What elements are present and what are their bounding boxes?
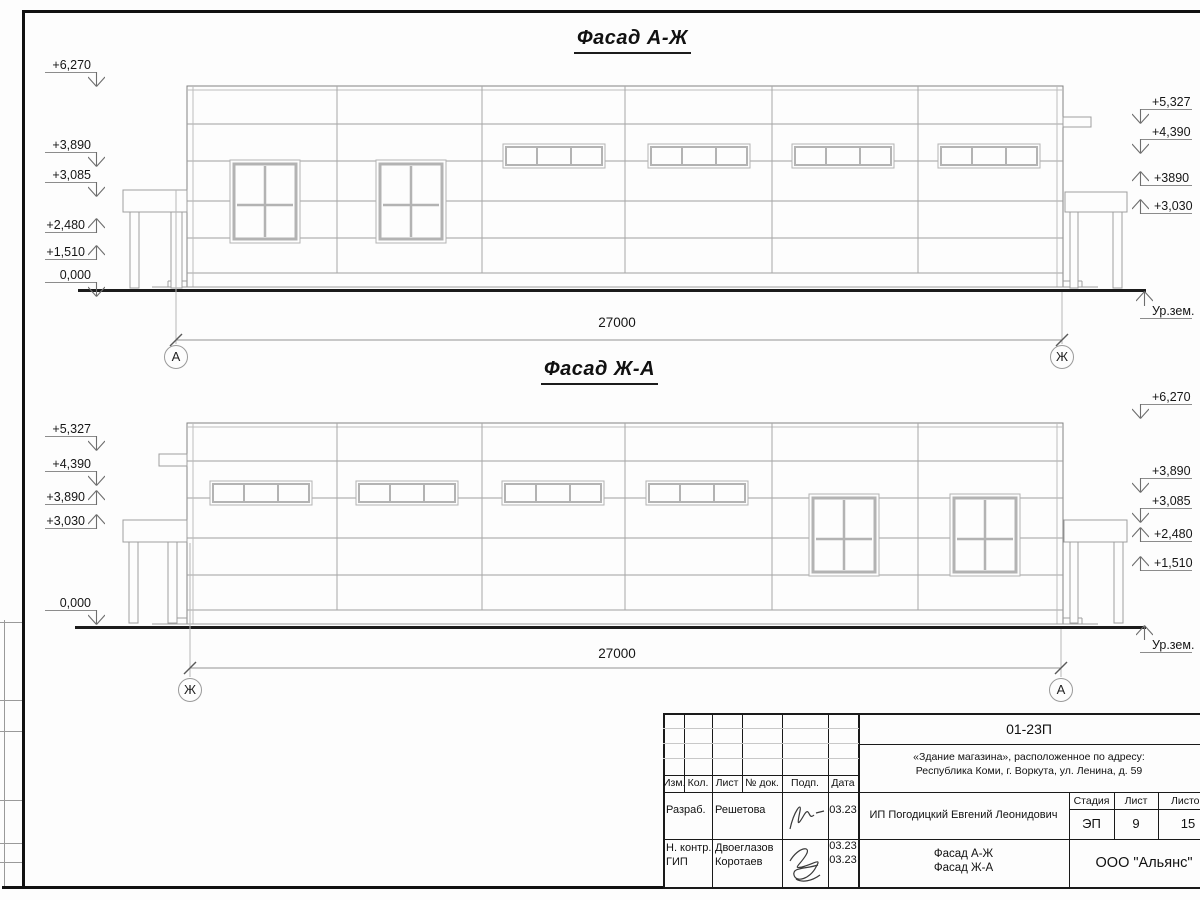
signer-name: Двоеглазов [715, 842, 773, 854]
margin-column-line [4, 620, 5, 886]
facade-bottom-title: Фасад Ж-А [512, 358, 687, 385]
elevation-arrow-up-icon [88, 514, 105, 529]
frame-left-border [22, 10, 25, 889]
elevation-arrow-down-icon [88, 152, 105, 167]
elevation-mark: +2,480 [45, 217, 97, 233]
drawing-title-line1: Фасад А-Ж [858, 848, 1069, 860]
elevation-value: +3,085 [1152, 494, 1191, 508]
elevation-value: +3,030 [1154, 199, 1193, 213]
elevation-mark: +4,390 [1140, 124, 1192, 140]
elevation-value: +1,510 [46, 245, 85, 259]
signer-role: Разраб. [666, 804, 706, 816]
stage-value: ЭП [1069, 816, 1114, 831]
elevation-arrow-up-icon [1132, 199, 1149, 214]
sheet-value: 9 [1114, 816, 1158, 831]
elevation-arrow-up-icon [1132, 171, 1149, 186]
elevation-value: +4,390 [1152, 125, 1191, 139]
elevation-value: +2,480 [46, 218, 85, 232]
elevation-mark: 0,000 [45, 595, 97, 611]
elevation-mark: +5,327 [45, 421, 97, 437]
facade-bottom-title-text: Фасад Ж-А [541, 358, 658, 385]
elevation-value: +3,890 [46, 490, 85, 504]
signer-date: 03.23 [828, 804, 858, 816]
elevation-value: 0,000 [60, 268, 91, 282]
axis-bubble: Ж [178, 678, 202, 702]
sheets-header: Листов [1158, 795, 1200, 807]
elevation-arrow-up-icon [1136, 291, 1153, 306]
signer-date: 03.23 [828, 840, 858, 852]
ground-level-mark: Ур.зем. [1140, 637, 1192, 653]
margin-divider [0, 800, 22, 801]
axis-bubble: А [1049, 678, 1073, 702]
axis-bubble: А [164, 345, 188, 369]
elevation-value: +6,270 [52, 58, 91, 72]
elevation-arrow-down-icon [88, 182, 105, 197]
project-address-line1: «Здание магазина», расположенное по адре… [860, 751, 1198, 763]
elevation-mark: +3,030 [1140, 198, 1192, 214]
signer-name: Коротаев [715, 856, 763, 868]
organization-name: ООО "Альянс" [1069, 855, 1200, 871]
signature-scribble [784, 795, 828, 837]
ground-level-mark: Ур.зем. [1140, 303, 1192, 319]
elevation-arrow-down-icon [1132, 478, 1149, 493]
stage-header: Стадия [1069, 795, 1114, 807]
elevation-mark: +1,510 [1140, 555, 1192, 571]
rev-header-list: Лист [712, 777, 742, 789]
facade-top-title: Фасад А-Ж [545, 27, 720, 54]
project-address-line2: Республика Коми, г. Воркута, ул. Ленина,… [860, 765, 1198, 777]
elevation-arrow-down-icon [88, 72, 105, 87]
elevation-arrow-down-icon [1132, 404, 1149, 419]
rev-header-ndok: № док. [742, 777, 782, 789]
ground-level-label: Ур.зем. [1152, 304, 1194, 318]
signature-scribble [782, 839, 830, 887]
margin-divider [0, 731, 22, 732]
elevation-mark: +3,030 [45, 513, 97, 529]
elevation-arrow-down-icon [88, 436, 105, 451]
elevation-arrow-up-icon [88, 245, 105, 260]
elevation-arrow-up-icon [1132, 556, 1149, 571]
sheets-value: 15 [1158, 816, 1200, 831]
elevation-arrow-down-icon [1132, 139, 1149, 154]
elevation-arrow-up-icon [88, 490, 105, 505]
elevation-arrow-up-icon [1132, 527, 1149, 542]
dimension-label: 27000 [560, 315, 674, 330]
axis-bubble: Ж [1050, 345, 1074, 369]
elevation-arrow-down-icon [1132, 109, 1149, 124]
signer-date: 03.23 [828, 854, 858, 866]
elevation-mark: +6,270 [45, 57, 97, 73]
elevation-mark: +2,480 [1140, 526, 1192, 542]
drawing-sheet: Фасад А-Ж Фасад Ж-А 27000 27000 А Ж Ж А … [0, 0, 1200, 900]
signer-role: Н. контр. [666, 842, 711, 854]
margin-divider [0, 700, 22, 701]
elevation-value: +5,327 [52, 422, 91, 436]
signer-role: ГИП [666, 856, 688, 868]
margin-divider [0, 843, 22, 844]
rev-header-kol: Кол. [684, 777, 712, 789]
title-block: Изм. Кол. Лист № док. Подп. Дата Разраб.… [663, 713, 1200, 889]
elevation-value: +3890 [1154, 171, 1189, 185]
elevation-mark: 0,000 [45, 267, 97, 283]
elevation-mark: +5,327 [1140, 94, 1192, 110]
elevation-mark: +1,510 [45, 244, 97, 260]
elevation-arrow-down-icon [88, 282, 105, 297]
dimension-label: 27000 [560, 646, 674, 661]
elevation-value: +3,890 [52, 138, 91, 152]
frame-top-border [22, 10, 1200, 13]
signer-name: Решетова [715, 804, 765, 816]
margin-divider [0, 862, 22, 863]
rev-header-izm: Изм. [663, 777, 684, 789]
elevation-mark: +6,270 [1140, 389, 1192, 405]
rev-header-podp: Подп. [782, 777, 828, 789]
elevation-value: +3,890 [1152, 464, 1191, 478]
elevation-value: +3,030 [46, 514, 85, 528]
elevation-value: +3,085 [52, 168, 91, 182]
drawing-title-line2: Фасад Ж-А [858, 862, 1069, 874]
elevation-mark: +3,085 [45, 167, 97, 183]
elevation-arrow-up-icon [1136, 625, 1153, 640]
ground-level-label: Ур.зем. [1152, 638, 1194, 652]
elevation-mark: +4,390 [45, 456, 97, 472]
sheet-header: Лист [1114, 795, 1158, 807]
elevation-arrow-up-icon [88, 218, 105, 233]
elevation-value: +2,480 [1154, 527, 1193, 541]
elevation-mark: +3,890 [1140, 463, 1192, 479]
doc-code: 01-23П [858, 721, 1200, 737]
client-name: ИП Погодицкий Евгений Леонидович [860, 809, 1067, 821]
elevation-arrow-down-icon [1132, 508, 1149, 523]
elevation-arrow-down-icon [88, 610, 105, 625]
facade-bottom-windows [210, 481, 1020, 576]
elevation-value: 0,000 [60, 596, 91, 610]
elevation-value: +5,327 [1152, 95, 1191, 109]
elevation-mark: +3,890 [45, 137, 97, 153]
elevation-value: +1,510 [1154, 556, 1193, 570]
elevation-value: +4,390 [52, 457, 91, 471]
elevation-mark: +3890 [1140, 170, 1192, 186]
facade-top-title-text: Фасад А-Ж [574, 27, 691, 54]
elevation-mark: +3,890 [45, 489, 97, 505]
elevation-arrow-down-icon [88, 471, 105, 486]
elevation-mark: +3,085 [1140, 493, 1192, 509]
rev-header-data: Дата [828, 777, 858, 789]
elevation-value: +6,270 [1152, 390, 1191, 404]
margin-divider [0, 622, 22, 623]
